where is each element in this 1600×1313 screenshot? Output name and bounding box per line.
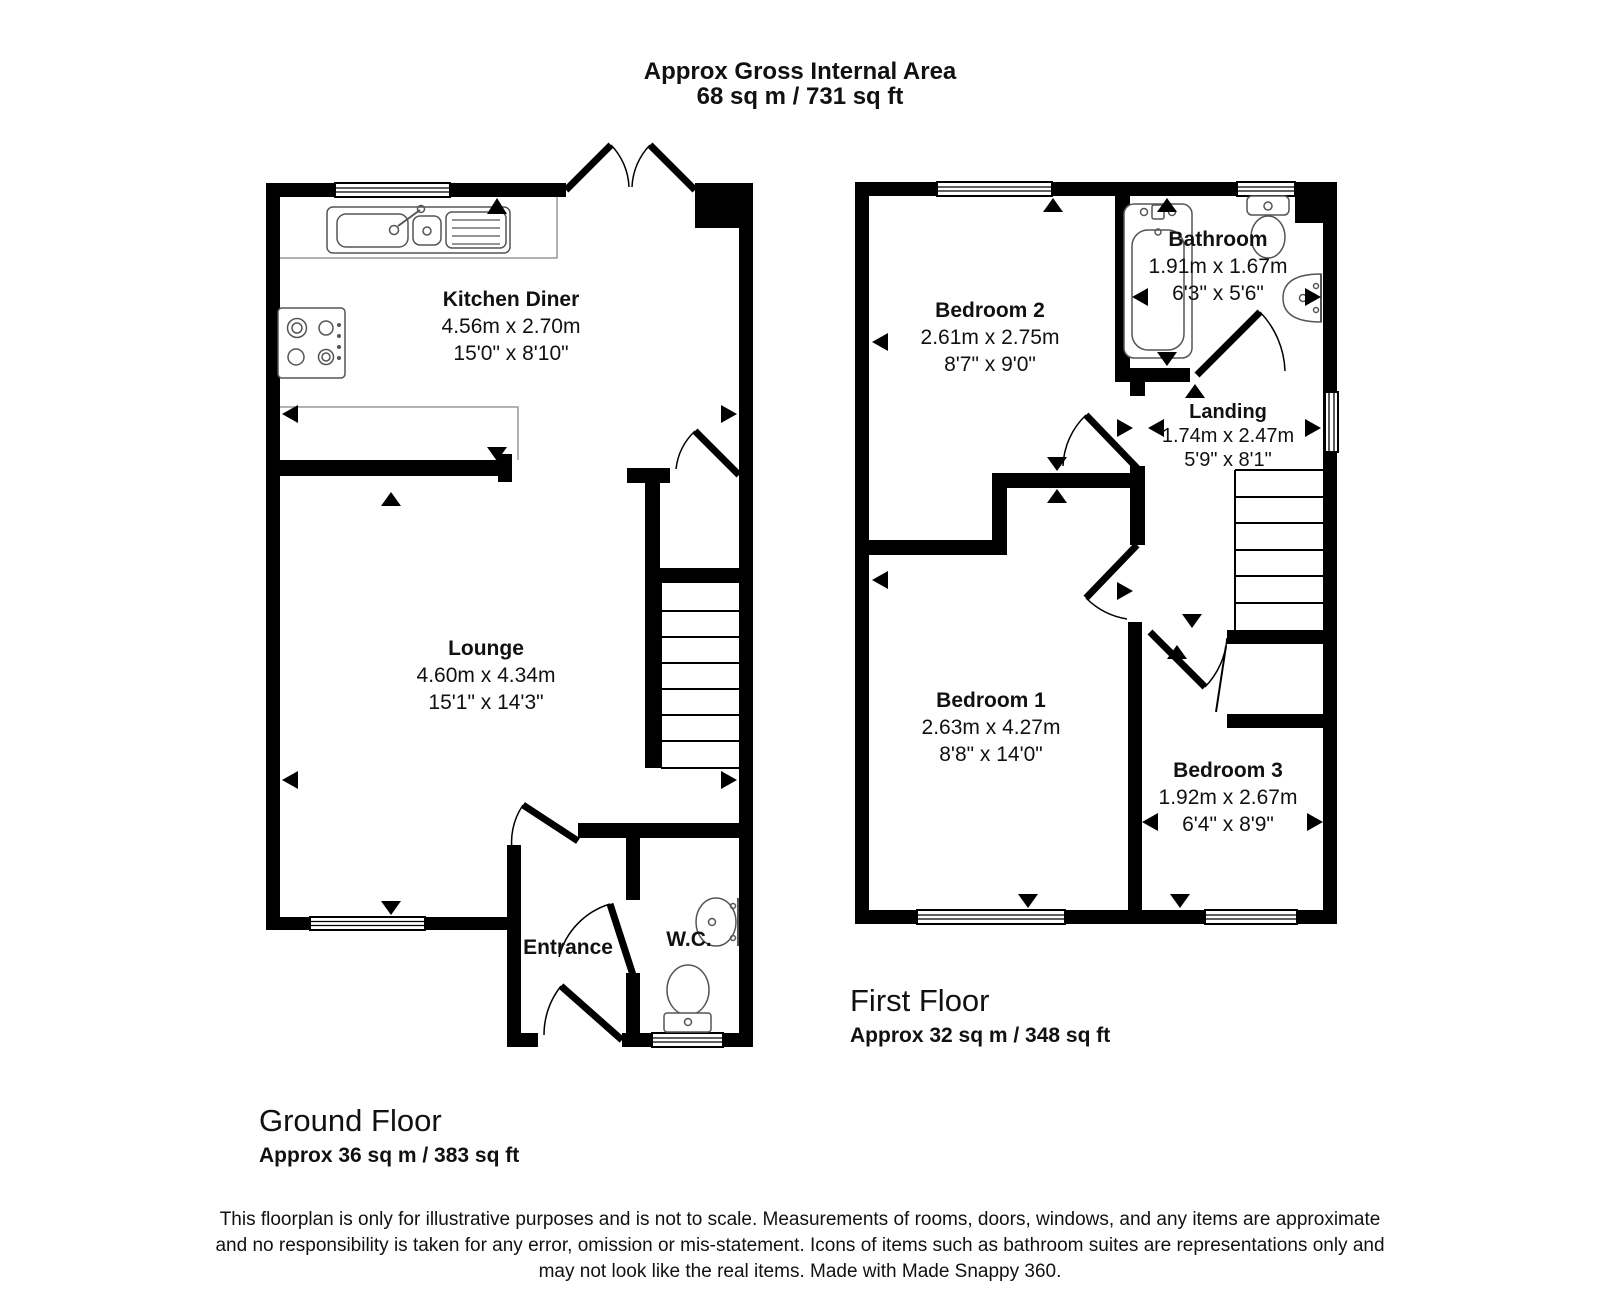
direction-arrow <box>1043 198 1063 212</box>
direction-arrow <box>1018 894 1038 908</box>
first-floor-title: First Floor <box>850 983 990 1019</box>
french-door-right-leaf <box>632 145 695 190</box>
wall-segment <box>507 845 521 1047</box>
lounge-entrance-door <box>512 805 578 856</box>
first-floor-area: Approx 32 sq m / 348 sq ft <box>850 1024 1110 1048</box>
room-dim-metric: 4.56m x 2.70m <box>442 313 581 340</box>
wall-segment <box>739 183 753 1047</box>
wall-segment <box>578 823 753 838</box>
wall-segment <box>626 973 640 1033</box>
stairs-first-icon <box>1216 470 1323 712</box>
wall-segment <box>1130 488 1145 545</box>
floorplan-page: Approx Gross Internal Area 68 sq m / 731… <box>0 0 1600 1313</box>
front-door <box>544 986 622 1040</box>
room-dim-metric: 1.74m x 2.47m <box>1162 424 1294 448</box>
wall-segment <box>1115 368 1190 382</box>
window-icon <box>1205 910 1297 924</box>
direction-arrow <box>872 333 888 351</box>
room-dim-metric: 2.61m x 2.75m <box>921 324 1060 351</box>
room-label-bathroom: Bathroom 1.91m x 1.67m 6'3" x 5'6" <box>1149 226 1288 307</box>
direction-arrow <box>381 492 401 506</box>
room-dim-imperial: 6'3" x 5'6" <box>1149 280 1288 307</box>
wall-segment <box>855 540 1007 555</box>
direction-arrow <box>487 198 507 214</box>
ground-floor-title: Ground Floor <box>259 1103 442 1139</box>
direction-arrow <box>1307 813 1323 831</box>
sink-icon <box>327 206 510 254</box>
direction-arrow <box>1185 384 1205 398</box>
wall-segment <box>1227 630 1323 644</box>
direction-arrow <box>1170 894 1190 908</box>
window-icon <box>652 1033 723 1047</box>
room-dim-imperial: 15'0" x 8'10" <box>442 340 581 367</box>
room-name: Entrance <box>523 934 613 961</box>
room-label-lounge: Lounge 4.60m x 4.34m 15'1" x 14'3" <box>417 635 556 716</box>
bedroom3-door <box>1150 632 1227 687</box>
direction-arrow <box>282 771 298 789</box>
room-name: W.C. <box>666 926 712 953</box>
window-icon <box>1325 392 1338 452</box>
wall-segment <box>507 1033 538 1047</box>
room-label-kitchen-diner: Kitchen Diner 4.56m x 2.70m 15'0" x 8'10… <box>442 286 581 367</box>
wall-segment <box>1130 370 1145 396</box>
disclaimer-line3: may not look like the real items. Made w… <box>0 1259 1600 1285</box>
wall-segment <box>627 468 670 483</box>
room-name: Bedroom 1 <box>922 687 1061 714</box>
direction-arrow <box>1117 419 1133 437</box>
ground-floor-area: Approx 36 sq m / 383 sq ft <box>259 1144 519 1168</box>
french-door-left-leaf <box>566 145 629 190</box>
direction-arrow <box>1142 813 1158 831</box>
window-icon <box>1237 182 1295 196</box>
floorplan-drawing <box>0 0 1600 1313</box>
room-name: Bedroom 3 <box>1159 757 1298 784</box>
direction-arrow <box>1047 489 1067 503</box>
window-icon <box>937 182 1052 196</box>
direction-arrow <box>1305 419 1321 437</box>
page-title-line1: Approx Gross Internal Area <box>0 59 1600 84</box>
room-label-landing: Landing 1.74m x 2.47m 5'9" x 8'1" <box>1162 400 1294 472</box>
ground-floor-plan <box>266 145 753 1047</box>
room-name: Bathroom <box>1149 226 1288 253</box>
wall-segment <box>645 483 660 768</box>
kitchen-door <box>676 431 739 475</box>
direction-arrow <box>381 901 401 915</box>
direction-arrow <box>872 571 888 589</box>
wall-segment <box>1323 182 1337 924</box>
wall-segment <box>660 568 740 583</box>
hob-icon <box>278 308 345 378</box>
room-label-bedroom2: Bedroom 2 2.61m x 2.75m 8'7" x 9'0" <box>921 297 1060 378</box>
room-dim-metric: 1.91m x 1.67m <box>1149 253 1288 280</box>
bathroom-door <box>1197 312 1285 375</box>
room-label-bedroom3: Bedroom 3 1.92m x 2.67m 6'4" x 8'9" <box>1159 757 1298 838</box>
page-title-line2: 68 sq m / 731 sq ft <box>0 84 1600 109</box>
direction-arrow <box>1182 614 1202 628</box>
room-dim-imperial: 5'9" x 8'1" <box>1162 448 1294 472</box>
stairs-ground-icon <box>661 583 739 768</box>
room-name: Landing <box>1162 400 1294 424</box>
room-dim-imperial: 15'1" x 14'3" <box>417 689 556 716</box>
room-dim-metric: 1.92m x 2.67m <box>1159 784 1298 811</box>
room-dim-metric: 2.63m x 4.27m <box>922 714 1061 741</box>
room-name: Kitchen Diner <box>442 286 581 313</box>
room-dim-imperial: 8'7" x 9'0" <box>921 351 1060 378</box>
wall-segment <box>626 838 640 900</box>
bedroom1-door <box>1086 545 1137 619</box>
room-name: Lounge <box>417 635 556 662</box>
wall-segment <box>498 454 512 482</box>
room-dim-imperial: 6'4" x 8'9" <box>1159 811 1298 838</box>
direction-arrow <box>721 771 737 789</box>
window-icon <box>310 917 425 930</box>
wall-segment <box>266 460 512 476</box>
window-icon <box>335 183 450 197</box>
bedroom2-door <box>1063 415 1137 468</box>
wall-segment <box>1007 473 1145 488</box>
direction-arrow <box>1157 352 1177 366</box>
window-icon <box>917 910 1065 924</box>
direction-arrow <box>721 405 737 423</box>
disclaimer: This floorplan is only for illustrative … <box>0 1207 1600 1285</box>
disclaimer-line1: This floorplan is only for illustrative … <box>0 1207 1600 1233</box>
direction-arrow <box>1047 457 1067 471</box>
wall-segment <box>1227 714 1323 728</box>
toilet-icon <box>664 965 711 1032</box>
wall-segment <box>266 183 280 930</box>
wall-segment <box>1295 182 1337 223</box>
room-label-entrance: Entrance <box>523 934 613 961</box>
room-label-bedroom1: Bedroom 1 2.63m x 4.27m 8'8" x 14'0" <box>922 687 1061 768</box>
direction-arrow <box>1117 582 1133 600</box>
room-dim-metric: 4.60m x 4.34m <box>417 662 556 689</box>
room-dim-imperial: 8'8" x 14'0" <box>922 741 1061 768</box>
page-title: Approx Gross Internal Area 68 sq m / 731… <box>0 59 1600 109</box>
room-label-wc: W.C. <box>666 926 712 953</box>
disclaimer-line2: and no responsibility is taken for any e… <box>0 1233 1600 1259</box>
room-name: Bedroom 2 <box>921 297 1060 324</box>
wall-segment <box>1128 622 1142 910</box>
